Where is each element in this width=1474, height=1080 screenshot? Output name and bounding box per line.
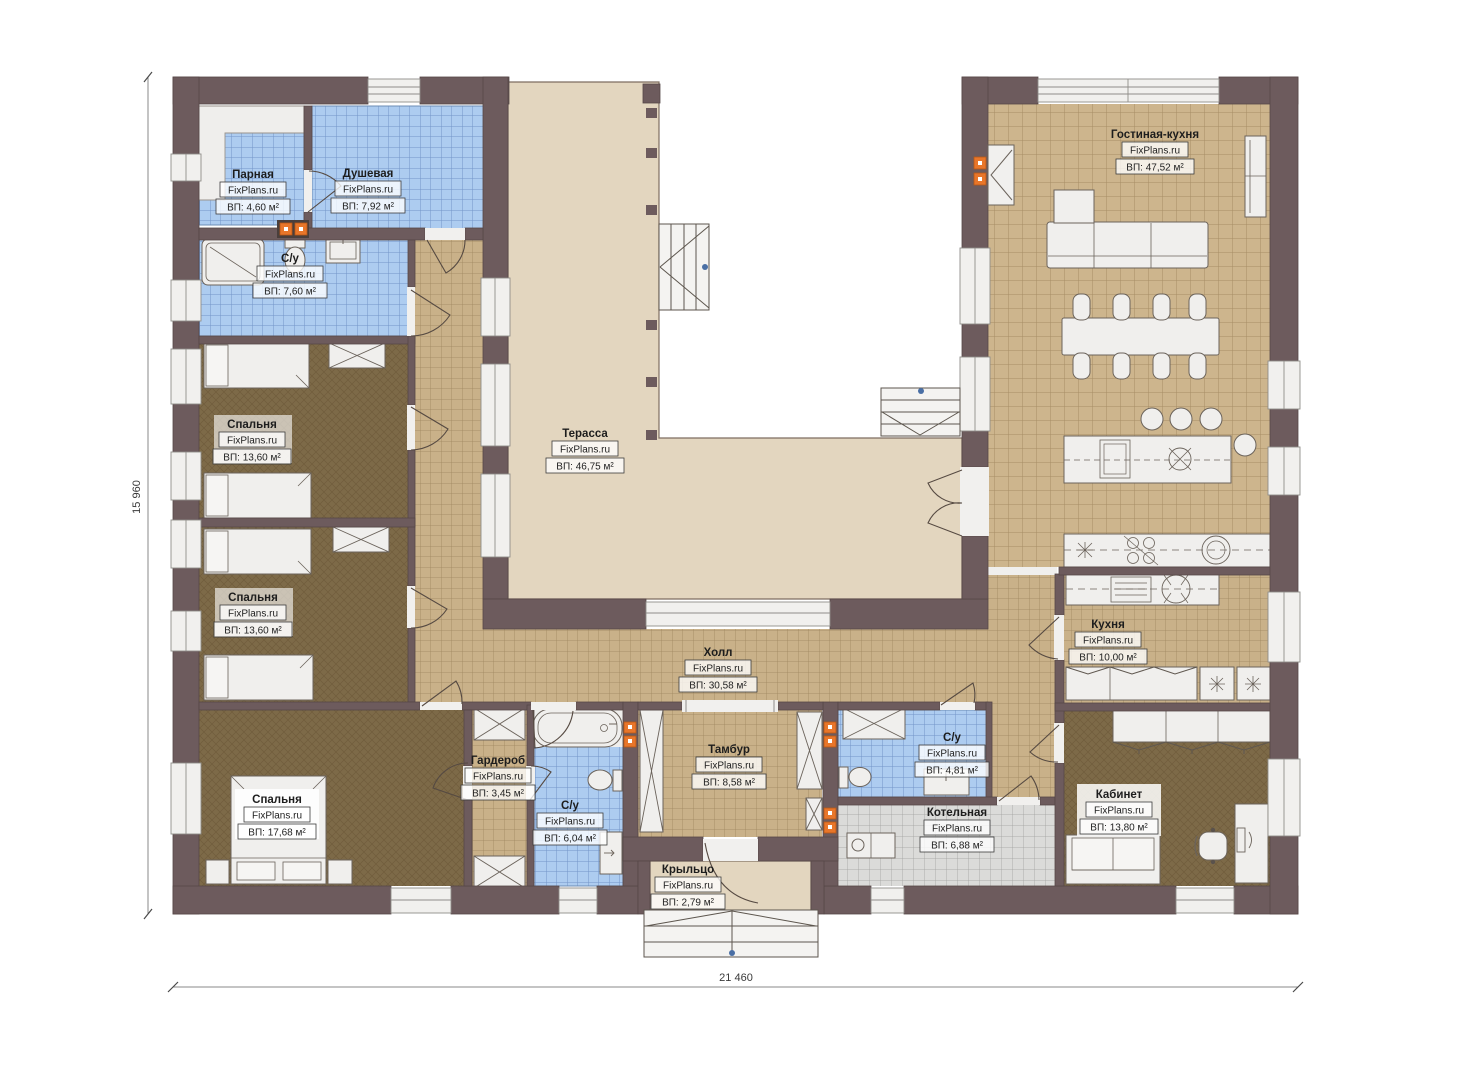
svg-text:FixPlans.ru: FixPlans.ru: [252, 811, 302, 822]
svg-text:FixPlans.ru: FixPlans.ru: [1130, 146, 1180, 157]
svg-text:Тамбур: Тамбур: [708, 744, 750, 756]
svg-text:FixPlans.ru: FixPlans.ru: [545, 817, 595, 828]
svg-text:Гостиная-кухня: Гостиная-кухня: [1111, 129, 1199, 141]
svg-text:ВП: 7,60 м²: ВП: 7,60 м²: [264, 287, 317, 298]
svg-text:Холл: Холл: [704, 647, 733, 659]
svg-text:Спальня: Спальня: [228, 592, 278, 604]
svg-text:FixPlans.ru: FixPlans.ru: [560, 445, 610, 456]
svg-text:Котельная: Котельная: [927, 807, 987, 819]
svg-text:FixPlans.ru: FixPlans.ru: [1094, 806, 1144, 817]
svg-text:ВП: 13,60 м²: ВП: 13,60 м²: [223, 453, 281, 464]
svg-text:ВП: 4,60 м²: ВП: 4,60 м²: [227, 203, 280, 214]
svg-text:FixPlans.ru: FixPlans.ru: [663, 881, 713, 892]
svg-text:Парная: Парная: [232, 169, 274, 181]
svg-text:15 960: 15 960: [131, 480, 143, 514]
svg-text:ВП: 3,45 м²: ВП: 3,45 м²: [472, 789, 525, 800]
svg-text:ВП: 4,81 м²: ВП: 4,81 м²: [926, 766, 979, 777]
svg-text:FixPlans.ru: FixPlans.ru: [228, 609, 278, 620]
svg-text:FixPlans.ru: FixPlans.ru: [693, 664, 743, 675]
svg-text:FixPlans.ru: FixPlans.ru: [927, 749, 977, 760]
svg-text:Спальня: Спальня: [227, 419, 277, 431]
svg-text:FixPlans.ru: FixPlans.ru: [227, 436, 277, 447]
svg-text:FixPlans.ru: FixPlans.ru: [473, 772, 523, 783]
svg-text:21 460: 21 460: [719, 972, 753, 984]
svg-text:Спальня: Спальня: [252, 794, 302, 806]
svg-text:Крыльцо: Крыльцо: [662, 864, 714, 876]
svg-text:ВП: 13,80 м²: ВП: 13,80 м²: [1090, 823, 1148, 834]
svg-text:ВП: 6,88 м²: ВП: 6,88 м²: [931, 841, 984, 852]
svg-text:С/у: С/у: [281, 253, 300, 265]
svg-text:ВП: 2,79 м²: ВП: 2,79 м²: [662, 898, 715, 909]
svg-text:Гардероб: Гардероб: [471, 755, 525, 767]
svg-text:Душевая: Душевая: [343, 168, 394, 180]
svg-text:ВП: 8,58 м²: ВП: 8,58 м²: [703, 778, 756, 789]
svg-text:Терасса: Терасса: [562, 428, 608, 440]
svg-text:ВП: 46,75 м²: ВП: 46,75 м²: [556, 462, 614, 473]
svg-text:FixPlans.ru: FixPlans.ru: [932, 824, 982, 835]
svg-text:С/у: С/у: [561, 800, 580, 812]
svg-text:ВП: 30,58 м²: ВП: 30,58 м²: [689, 681, 747, 692]
svg-text:ВП: 13,60 м²: ВП: 13,60 м²: [224, 626, 282, 637]
svg-text:ВП: 7,92 м²: ВП: 7,92 м²: [342, 202, 395, 213]
svg-text:FixPlans.ru: FixPlans.ru: [265, 270, 315, 281]
svg-text:Кабинет: Кабинет: [1096, 789, 1143, 801]
svg-text:ВП: 10,00 м²: ВП: 10,00 м²: [1079, 653, 1137, 664]
svg-text:Кухня: Кухня: [1091, 619, 1125, 631]
svg-text:FixPlans.ru: FixPlans.ru: [343, 185, 393, 196]
svg-text:ВП: 17,68 м²: ВП: 17,68 м²: [248, 828, 306, 839]
svg-text:ВП: 6,04 м²: ВП: 6,04 м²: [544, 834, 597, 845]
svg-text:FixPlans.ru: FixPlans.ru: [228, 186, 278, 197]
svg-text:ВП: 47,52 м²: ВП: 47,52 м²: [1126, 163, 1184, 174]
svg-text:FixPlans.ru: FixPlans.ru: [704, 761, 754, 772]
svg-text:С/у: С/у: [943, 732, 962, 744]
svg-text:FixPlans.ru: FixPlans.ru: [1083, 636, 1133, 647]
